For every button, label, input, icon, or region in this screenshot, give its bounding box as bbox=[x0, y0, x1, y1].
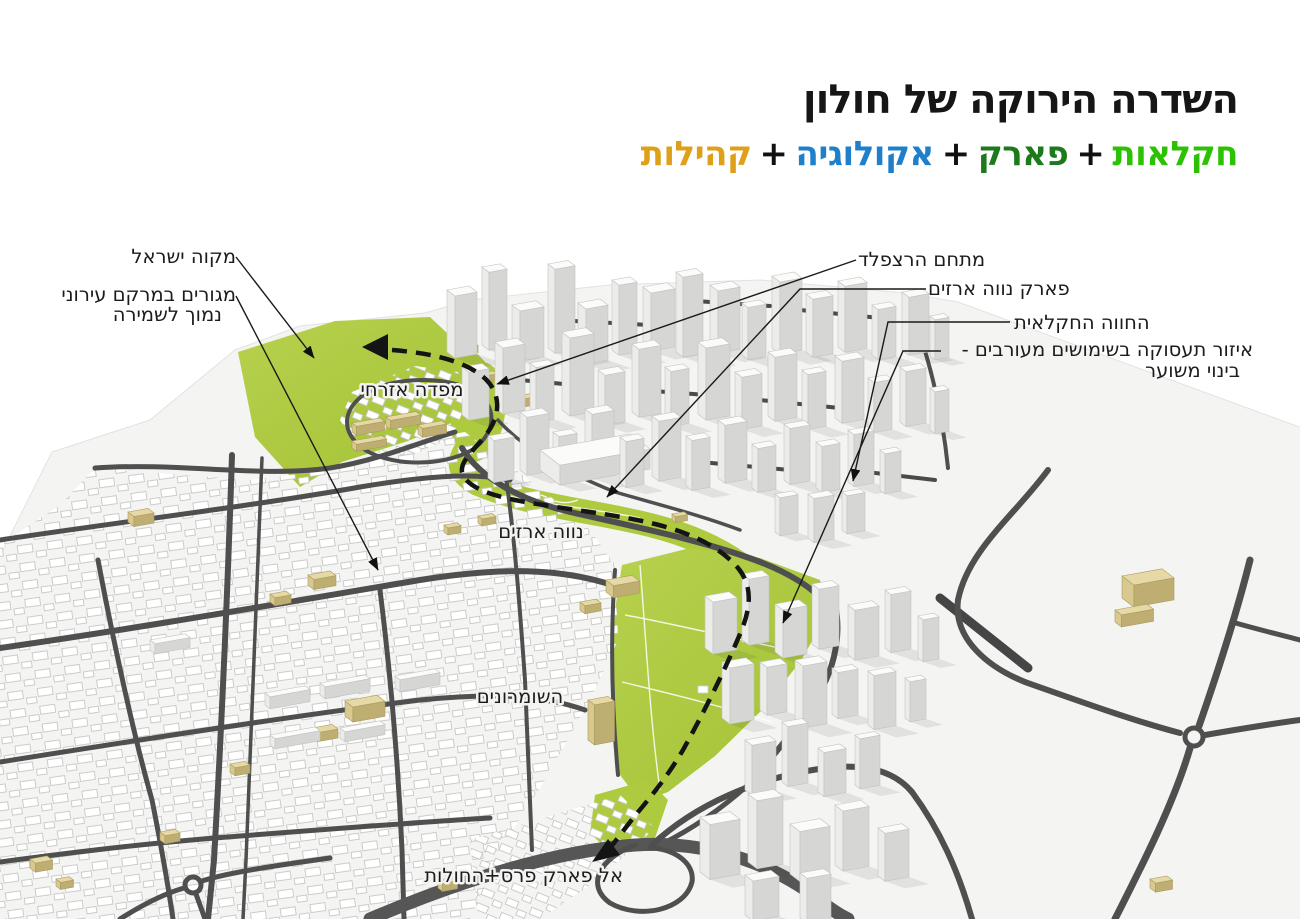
label-neve-arazim-park: פארק נווה ארזים bbox=[928, 277, 1070, 300]
page-subtitle: חקלאות+פארק+אקולוגיה+קהילות bbox=[641, 134, 1238, 174]
subtitle-plus: + bbox=[1076, 134, 1104, 174]
subtitle-ecology: אקולוגיה bbox=[795, 134, 933, 174]
label-to-peres-park: אל פארק פרס+החולות bbox=[424, 864, 623, 887]
label-mifde-ezrahi: מפדה אזרחי bbox=[361, 378, 464, 401]
label-neve-arazim: נווה ארזים bbox=[498, 520, 583, 543]
label-employment-line2: בינוי משוער bbox=[1145, 359, 1240, 382]
title-block: השדרה הירוקה של חולון חקלאות+פארק+אקולוג… bbox=[641, 78, 1238, 174]
subtitle-park: פארק bbox=[978, 134, 1069, 174]
label-hashomronim: השומרונים bbox=[477, 685, 564, 708]
label-herzfeld: מתחם הרצפלד bbox=[858, 248, 985, 271]
label-mikveh-israel: מקוה ישראל bbox=[131, 245, 236, 268]
subtitle-agriculture: חקלאות bbox=[1112, 134, 1238, 174]
subtitle-plus: + bbox=[759, 134, 787, 174]
page-title: השדרה הירוקה של חולון bbox=[641, 78, 1238, 122]
label-agricultural-farm: החווה החקלאית bbox=[1014, 311, 1150, 334]
subtitle-plus: + bbox=[942, 134, 970, 174]
subtitle-communities: קהילות bbox=[641, 134, 752, 174]
label-housing-line2: נמוך לשמירה bbox=[113, 303, 222, 326]
urban-plan-figure: מקוה ישראל מגורים במרקם עירוני נמוך לשמי… bbox=[0, 0, 1300, 919]
label-employment-line1: איזור תעסוקה בשימושים מעורבים - bbox=[962, 338, 1253, 361]
